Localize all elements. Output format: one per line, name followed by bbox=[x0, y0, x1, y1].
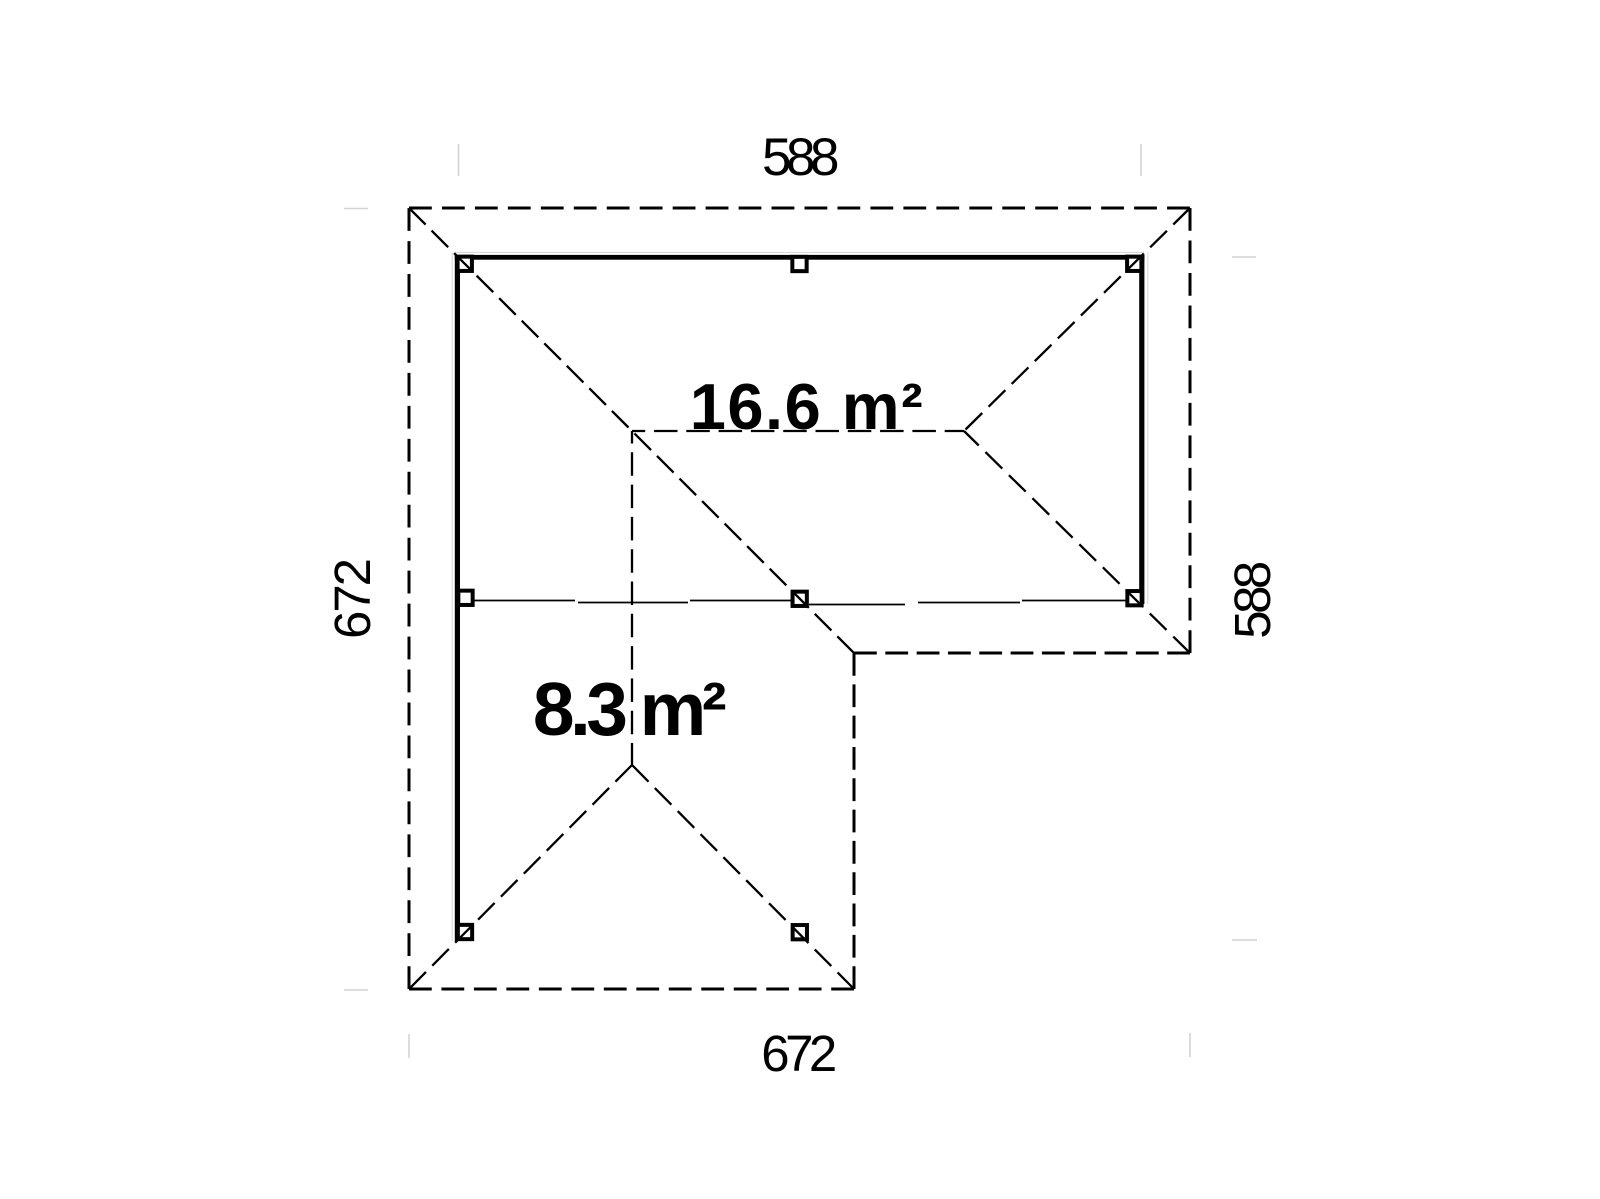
svg-text:8.3 m²: 8.3 m² bbox=[533, 667, 726, 751]
svg-text:588: 588 bbox=[1224, 562, 1281, 639]
svg-text:588: 588 bbox=[762, 128, 838, 187]
svg-text:672: 672 bbox=[324, 560, 381, 639]
svg-text:16.6 m²: 16.6 m² bbox=[690, 370, 925, 443]
svg-text:672: 672 bbox=[761, 1025, 835, 1082]
